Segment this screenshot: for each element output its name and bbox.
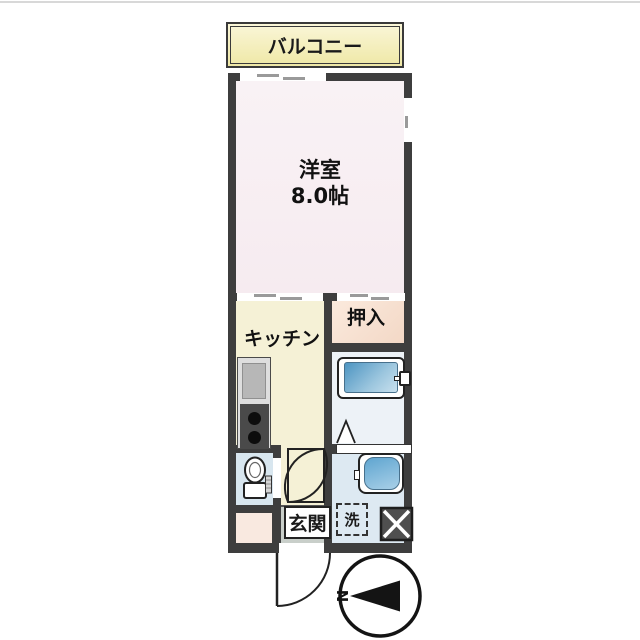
compass-arrow-icon: [350, 581, 400, 612]
bath-faucet-spout: [394, 376, 400, 381]
main-room-name: 洋室: [291, 157, 349, 183]
kitchen-label: キッチン: [244, 328, 320, 352]
door-sash-tick: [371, 297, 389, 300]
washbasin-bowl: [364, 457, 400, 490]
compass-north-label: N: [333, 590, 351, 603]
door-sash-tick: [280, 297, 302, 300]
main-room-size: 8.0帖: [291, 183, 349, 209]
compass: N: [333, 556, 420, 636]
entrance-door-icon: [277, 553, 330, 606]
window-sash-tick: [405, 116, 408, 128]
wall-outer-left: [228, 73, 236, 553]
door-sash-tick: [350, 294, 368, 297]
laundry-label: 洗: [344, 509, 359, 530]
washbasin-tap: [354, 470, 360, 480]
alcove-floor: [236, 513, 272, 543]
image-top-border: [0, 1, 640, 3]
wall-closet-bottom: [324, 343, 412, 352]
toilet-floor: [236, 453, 273, 505]
burner-icon: [248, 431, 261, 444]
entrance-label-box: 玄関: [284, 506, 331, 539]
window-sash-tick: [283, 77, 305, 80]
window-sash-tick: [257, 74, 279, 77]
bath-faucet-icon: [399, 371, 411, 386]
bathtub-water: [344, 362, 398, 393]
entrance-door-gap: [279, 543, 324, 553]
balcony: バルコニー: [226, 22, 404, 68]
wall-outer-right: [404, 73, 412, 553]
closet-label: 押入: [347, 307, 385, 331]
toilet-door-gap: [273, 458, 281, 498]
main-room-label: 洋室 8.0帖: [291, 157, 349, 210]
compass-circle: [340, 556, 420, 636]
floor-plan: バルコニー 洋室 8.0帖: [0, 0, 640, 640]
entrance-label: 玄関: [288, 509, 326, 536]
door-sash-tick: [254, 294, 276, 297]
kitchen-sink-icon: [242, 363, 266, 399]
balcony-label: バルコニー: [268, 32, 363, 59]
burner-icon: [248, 412, 261, 425]
washing-machine-space: 洗: [336, 503, 368, 536]
